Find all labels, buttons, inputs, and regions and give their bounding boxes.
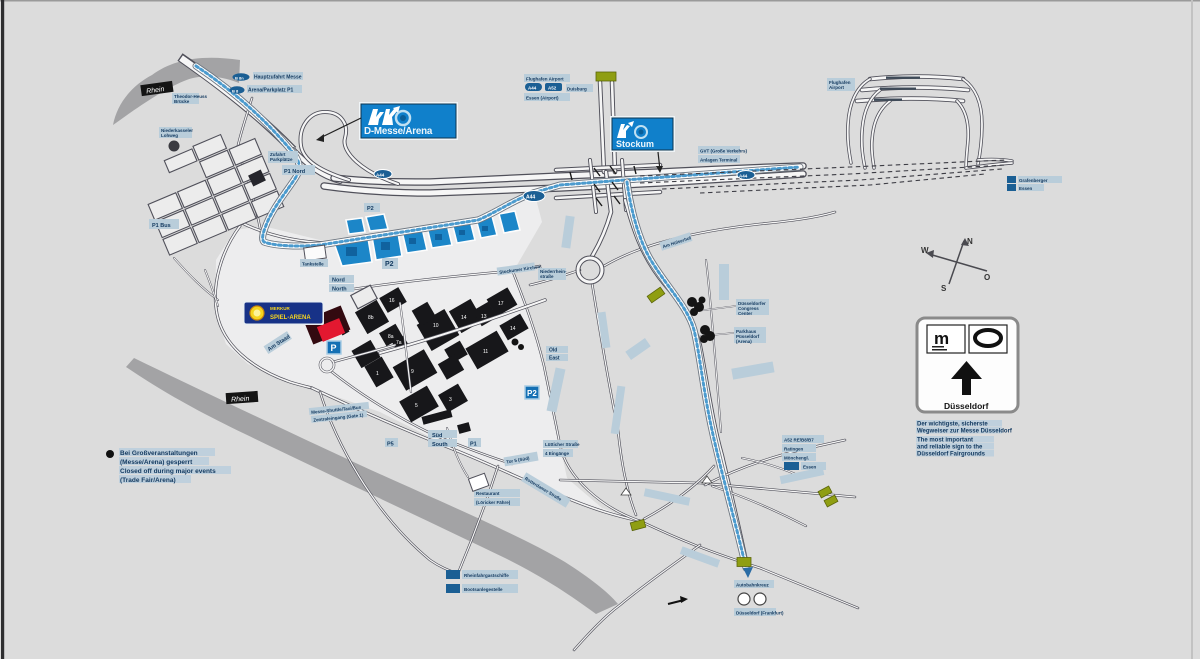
svg-text:(Trade Fair/Arena): (Trade Fair/Arena) — [120, 477, 176, 484]
svg-text:P2: P2 — [367, 206, 374, 212]
svg-text:A52: A52 — [548, 86, 557, 91]
svg-text:Center: Center — [738, 311, 753, 316]
svg-text:Süd: Süd — [432, 433, 442, 439]
svg-text:Tankstelle: Tankstelle — [302, 262, 324, 267]
svg-text:Grafenberger: Grafenberger — [1019, 178, 1048, 183]
svg-text:Essen (Airport): Essen (Airport) — [526, 96, 559, 101]
svg-text:10: 10 — [433, 323, 439, 329]
svg-text:1: 1 — [376, 371, 379, 377]
svg-text:A44: A44 — [526, 195, 535, 201]
svg-text:Essen: Essen — [1019, 186, 1033, 191]
svg-text:straße: straße — [540, 274, 554, 279]
svg-text:W: W — [921, 246, 929, 255]
svg-text:East: East — [549, 356, 560, 362]
svg-text:Lohweg: Lohweg — [161, 133, 178, 138]
svg-text:3: 3 — [449, 397, 452, 403]
svg-text:Ratingen: Ratingen — [784, 447, 804, 452]
svg-text:and reliable sign to the: and reliable sign to the — [917, 445, 983, 451]
svg-text:m: m — [934, 329, 949, 348]
svg-text:Autobahnkreuz: Autobahnkreuz — [736, 583, 770, 588]
svg-text:D-Messe/Arena: D-Messe/Arena — [364, 126, 433, 137]
svg-text:Hauptzufahrt Messe: Hauptzufahrt Messe — [254, 75, 302, 81]
svg-text:Mönchengl.: Mönchengl. — [784, 456, 809, 461]
svg-text:13: 13 — [481, 314, 487, 320]
svg-text:Düsseldorf: Düsseldorf — [944, 401, 989, 411]
svg-text:(Arena): (Arena) — [736, 339, 752, 344]
svg-text:A44: A44 — [739, 174, 748, 179]
svg-text:MERKUR: MERKUR — [270, 306, 290, 311]
svg-text:(Messe/Arena) gesperrt: (Messe/Arena) gesperrt — [120, 459, 193, 466]
svg-text:Parkplätze: Parkplätze — [270, 157, 293, 162]
svg-text:P1 Bus: P1 Bus — [152, 223, 171, 229]
svg-text:Airport: Airport — [829, 85, 845, 90]
svg-text:Düsseldorf (Frankfurt): Düsseldorf (Frankfurt) — [736, 611, 784, 616]
svg-text:Duisburg: Duisburg — [567, 87, 587, 92]
svg-text:B 8: B 8 — [232, 89, 239, 94]
svg-text:Anlagen Terminal: Anlagen Terminal — [700, 158, 737, 163]
svg-text:16: 16 — [389, 298, 395, 304]
svg-text:8a: 8a — [388, 334, 394, 340]
svg-text:17: 17 — [498, 301, 504, 307]
svg-text:4 Eingänge: 4 Eingänge — [545, 451, 570, 456]
svg-text:P: P — [331, 343, 337, 353]
svg-text:Stockum: Stockum — [616, 139, 654, 149]
svg-text:Rheinfahrgastschiffe: Rheinfahrgastschiffe — [464, 573, 509, 578]
svg-text:P2: P2 — [527, 389, 537, 398]
svg-text:North: North — [332, 287, 347, 293]
svg-text:A44: A44 — [528, 86, 537, 91]
svg-text:South: South — [432, 442, 448, 448]
svg-text:P2: P2 — [385, 261, 394, 268]
svg-text:S: S — [941, 284, 947, 293]
svg-text:A52 RE/B8/B7: A52 RE/B8/B7 — [784, 438, 814, 443]
svg-text:Bootsanlegestelle: Bootsanlegestelle — [464, 587, 503, 592]
svg-text:Düsseldorf Fairgrounds: Düsseldorf Fairgrounds — [917, 452, 986, 458]
svg-text:P5: P5 — [387, 442, 394, 448]
svg-text:Flughafen Airport: Flughafen Airport — [526, 77, 564, 82]
svg-text:B 8n: B 8n — [235, 76, 244, 81]
svg-text:Der wichtigste, sicherste: Der wichtigste, sicherste — [917, 422, 988, 428]
svg-text:Rhein: Rhein — [231, 395, 250, 403]
svg-text:GVT (Große Verkehrs): GVT (Große Verkehrs) — [700, 149, 748, 154]
svg-text:SPIEL-ARENA: SPIEL-ARENA — [270, 315, 311, 321]
svg-text:Old: Old — [549, 348, 557, 354]
svg-text:Lütticher Straße: Lütticher Straße — [545, 442, 580, 447]
svg-text:5: 5 — [415, 403, 418, 409]
svg-text:The most important: The most important — [917, 438, 973, 444]
svg-text:P1 Nord: P1 Nord — [284, 169, 305, 175]
svg-text:Nord: Nord — [332, 278, 345, 284]
svg-text:Arena/Parkplatz P1: Arena/Parkplatz P1 — [248, 88, 294, 94]
svg-text:Wegweiser zur Messe Düsseldorf: Wegweiser zur Messe Düsseldorf — [917, 429, 1013, 435]
svg-text:14: 14 — [510, 326, 516, 332]
svg-text:9: 9 — [411, 369, 414, 375]
svg-text:O: O — [984, 273, 990, 282]
svg-text:8b: 8b — [368, 315, 374, 321]
svg-text:7a: 7a — [396, 340, 402, 346]
svg-text:P1: P1 — [470, 442, 477, 448]
svg-text:11: 11 — [483, 349, 488, 355]
svg-text:Bei Großveranstaltungen: Bei Großveranstaltungen — [120, 450, 198, 457]
svg-text:Restaurant: Restaurant — [476, 491, 500, 496]
svg-text:N: N — [967, 237, 973, 246]
svg-text:Essen: Essen — [803, 465, 817, 470]
svg-text:Brücke: Brücke — [174, 99, 190, 104]
svg-text:(Löricker Fähre): (Löricker Fähre) — [476, 500, 511, 505]
svg-text:14: 14 — [461, 315, 467, 321]
svg-text:A44: A44 — [376, 173, 385, 178]
svg-text:Closed off during major events: Closed off during major events — [120, 468, 216, 475]
